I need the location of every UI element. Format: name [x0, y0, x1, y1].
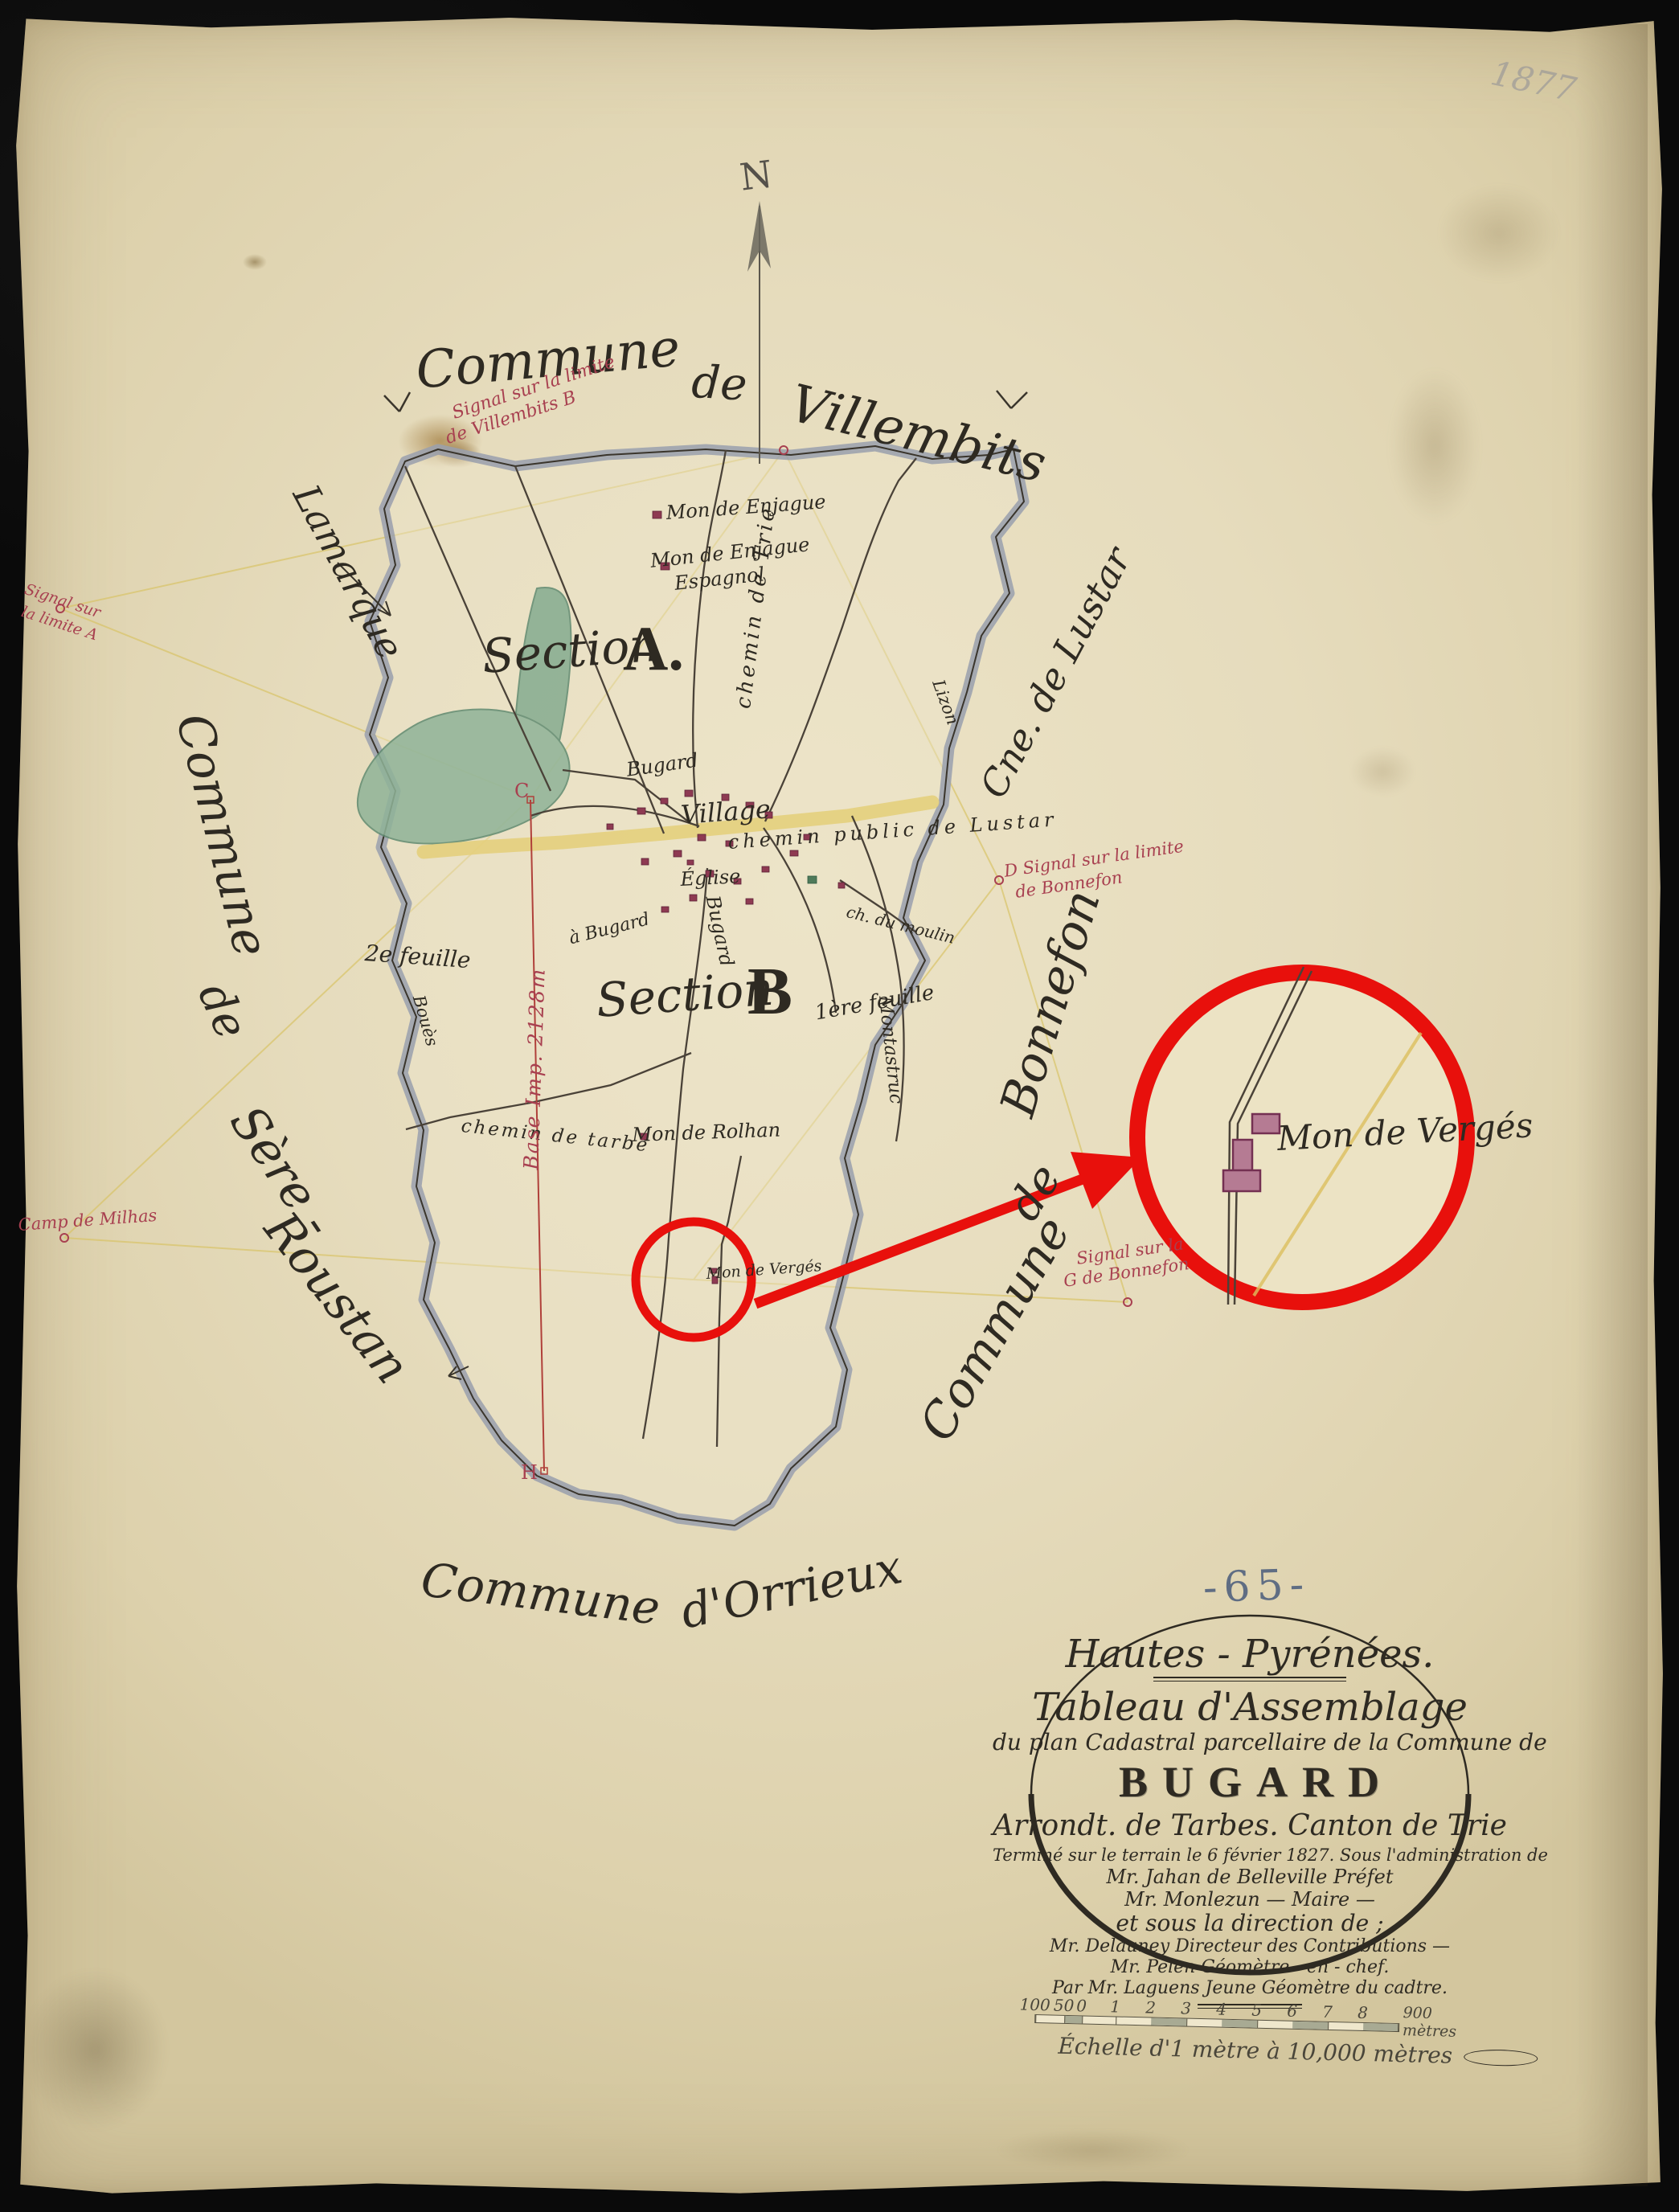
scale-bar: 100 50 0 1 2 3 4 5 6 7 8 900 mètres Éche…: [1034, 1995, 1437, 2077]
cartouche-line2: Mr. Jahan de Belleville Préfet: [993, 1867, 1507, 1886]
cartouche-line7: Par Mr. Laguens Jeune Géomètre du cadtre…: [993, 1980, 1507, 1997]
scale-tickmark: [1116, 2017, 1116, 2024]
church-block: [808, 876, 817, 883]
house-rolhan: Mon de Rolhan: [632, 1120, 780, 1145]
cartouche-line6: Mr. Pelen Géomètre - en - chef.: [993, 1959, 1507, 1976]
cartouche: Hautes - Pyrénées. Tableau d'Assemblage …: [993, 1630, 1507, 2009]
scale-tick: 0: [1076, 1996, 1087, 2015]
scale-tickmark: [1035, 2015, 1036, 2022]
scale-tickmark: [1082, 2016, 1083, 2023]
scale-tick: 1: [1110, 1997, 1120, 2016]
scale-tick: 50: [1054, 1996, 1075, 2016]
scale-tickmark: [1328, 2022, 1329, 2030]
sheet-number: -65-: [1202, 1563, 1311, 1609]
scale-bar-segment: [1363, 2023, 1398, 2031]
scale-bar-segment: [1292, 2022, 1328, 2030]
scale-tickmark: [1398, 2024, 1398, 2031]
scale-end-label: 900 mètres: [1403, 2004, 1457, 2041]
north-label: N: [738, 155, 775, 196]
scale-tick: 3: [1181, 1998, 1191, 2017]
scale-bar-segment: [1151, 2018, 1186, 2026]
north-arrow: [747, 201, 771, 464]
cartouche-line1: Terminé sur le terrain le 6 février 1827…: [993, 1847, 1507, 1864]
neighbor-top-de: de: [690, 360, 748, 408]
scale-bar-segment: [1064, 2016, 1082, 2024]
cartouche-region: Hautes - Pyrénées.: [993, 1635, 1507, 1673]
cartouche-title: Tableau d'Assemblage: [993, 1688, 1507, 1727]
cartouche-subtitle: du plan Cadastral parcellaire de la Comm…: [993, 1731, 1507, 1754]
scale-tick: 8: [1358, 2003, 1368, 2022]
cartouche-line3: Mr. Monlezun — Maire —: [993, 1890, 1507, 1909]
scale-caption-text: Échelle d'1 mètre à 10,000 mètres: [1058, 2033, 1453, 2069]
cartouche-line4: et sous la direction de ;: [993, 1912, 1507, 1935]
scale-tick: 5: [1251, 2001, 1262, 2020]
scale-tick: 7: [1322, 2002, 1333, 2022]
scanned-cadastral-map-page: { "page": { "sheet_number": "-65-", "pen…: [0, 0, 1679, 2212]
scale-tickmark: [1257, 2021, 1258, 2028]
scale-tick: 2: [1145, 1997, 1156, 2017]
village-label: Village: [680, 796, 772, 828]
cartouche-region-underline: [1153, 1677, 1346, 1682]
base-point-c: C: [514, 781, 529, 801]
scale-tick: 100: [1019, 1995, 1050, 2015]
section-b-letter: B: [747, 958, 792, 1026]
cartouche-admin: Arrondt. de Tarbes. Canton de Trie: [993, 1812, 1507, 1841]
scale-tick: 6: [1287, 2001, 1297, 2021]
section-a-letter: A.: [623, 617, 684, 680]
cartouche-commune-name: BUGARD: [999, 1760, 1513, 1804]
scale-bar-segment: [1222, 2020, 1257, 2028]
scale-tickmark: [1064, 2016, 1065, 2023]
base-point-h: H: [521, 1463, 538, 1482]
scale-tickmark: [1186, 2019, 1187, 2026]
church-label: Église: [680, 866, 741, 889]
scale-caption-flourish: [1464, 2049, 1538, 2067]
cartouche-line5: Mr. Delauney Directeur des Contributions…: [993, 1938, 1507, 1956]
scale-tick: 4: [1216, 2000, 1226, 2019]
